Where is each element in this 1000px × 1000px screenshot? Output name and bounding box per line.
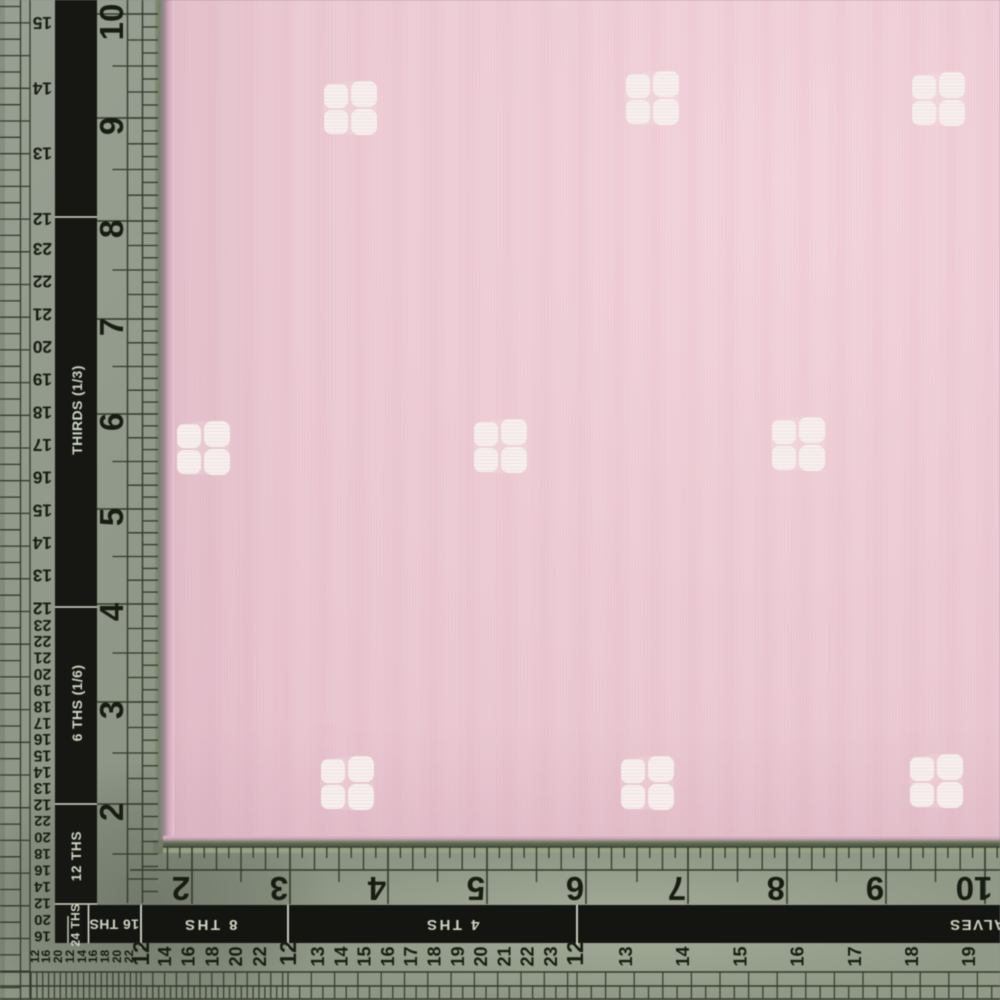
svg-text:9: 9 xyxy=(93,117,130,135)
svg-text:20: 20 xyxy=(34,911,51,928)
svg-text:18: 18 xyxy=(425,946,445,966)
svg-text:2: 2 xyxy=(172,870,190,907)
svg-text:12: 12 xyxy=(562,940,588,966)
svg-text:4: 4 xyxy=(367,870,386,907)
svg-text:6: 6 xyxy=(93,413,130,431)
svg-text:15: 15 xyxy=(730,946,750,966)
svg-text:16: 16 xyxy=(33,468,52,488)
svg-text:2: 2 xyxy=(93,803,130,821)
svg-text:17: 17 xyxy=(401,946,421,966)
svg-text:16: 16 xyxy=(34,730,52,747)
svg-text:17: 17 xyxy=(34,714,52,731)
svg-text:16: 16 xyxy=(378,946,398,966)
svg-text:23: 23 xyxy=(34,616,52,633)
svg-text:21: 21 xyxy=(34,649,52,666)
svg-text:8: 8 xyxy=(93,220,130,238)
svg-text:16 THS: 16 THS xyxy=(89,917,139,933)
svg-text:21: 21 xyxy=(494,946,514,966)
svg-text:13: 13 xyxy=(33,144,52,164)
svg-text:20: 20 xyxy=(34,829,51,846)
svg-text:8 THS: 8 THS xyxy=(182,916,237,933)
svg-text:15: 15 xyxy=(34,746,52,763)
svg-text:12: 12 xyxy=(275,940,301,966)
svg-text:12: 12 xyxy=(33,598,52,618)
svg-text:19: 19 xyxy=(959,946,979,966)
svg-text:17: 17 xyxy=(33,435,52,455)
svg-text:14: 14 xyxy=(155,946,175,966)
svg-text:18: 18 xyxy=(34,845,51,862)
svg-text:7: 7 xyxy=(668,870,686,907)
svg-text:13: 13 xyxy=(33,566,52,586)
svg-text:THIRDS (1/3): THIRDS (1/3) xyxy=(69,365,85,455)
svg-text:24 THS: 24 THS xyxy=(69,903,83,946)
svg-text:12: 12 xyxy=(34,795,52,812)
svg-text:18: 18 xyxy=(34,697,52,714)
svg-text:13: 13 xyxy=(616,946,636,966)
svg-text:20: 20 xyxy=(226,946,246,966)
svg-text:15: 15 xyxy=(33,13,52,33)
svg-text:14: 14 xyxy=(33,78,52,98)
svg-text:16: 16 xyxy=(34,928,51,945)
svg-text:12: 12 xyxy=(128,940,154,966)
svg-text:18: 18 xyxy=(33,402,52,422)
svg-text:23: 23 xyxy=(541,946,561,966)
svg-text:15: 15 xyxy=(33,500,52,520)
svg-text:19: 19 xyxy=(33,370,52,390)
svg-text:13: 13 xyxy=(34,779,52,796)
svg-text:20: 20 xyxy=(33,337,52,357)
svg-text:10: 10 xyxy=(956,870,993,907)
svg-text:4 THS: 4 THS xyxy=(424,916,479,933)
svg-text:HALVES: HALVES xyxy=(949,916,1000,933)
svg-text:14: 14 xyxy=(34,763,52,780)
svg-text:14: 14 xyxy=(331,946,351,966)
svg-text:7: 7 xyxy=(93,318,130,336)
svg-text:17: 17 xyxy=(845,946,865,966)
svg-text:16: 16 xyxy=(179,946,199,966)
svg-text:8: 8 xyxy=(767,870,785,907)
svg-text:22: 22 xyxy=(34,632,52,649)
svg-text:14: 14 xyxy=(673,946,693,966)
svg-text:12: 12 xyxy=(33,209,52,229)
svg-text:19: 19 xyxy=(34,681,52,698)
svg-text:22: 22 xyxy=(250,946,270,966)
svg-text:6 THS (1/6): 6 THS (1/6) xyxy=(69,665,85,742)
svg-text:23: 23 xyxy=(33,239,52,259)
svg-text:9: 9 xyxy=(866,870,884,907)
svg-text:4: 4 xyxy=(93,602,130,621)
svg-text:3: 3 xyxy=(93,701,130,719)
svg-text:12: 12 xyxy=(34,895,51,912)
svg-text:18: 18 xyxy=(902,946,922,966)
svg-text:14: 14 xyxy=(33,533,52,553)
svg-text:18: 18 xyxy=(202,946,222,966)
svg-text:15: 15 xyxy=(355,946,375,966)
svg-text:20: 20 xyxy=(34,665,52,682)
svg-text:3: 3 xyxy=(270,870,288,907)
svg-text:21: 21 xyxy=(33,304,52,324)
svg-text:16: 16 xyxy=(788,946,808,966)
svg-text:22: 22 xyxy=(34,812,51,829)
svg-text:12 THS: 12 THS xyxy=(69,831,84,882)
svg-text:5: 5 xyxy=(467,870,485,907)
svg-text:5: 5 xyxy=(93,508,130,526)
svg-text:22: 22 xyxy=(33,272,52,292)
svg-text:6: 6 xyxy=(566,870,584,907)
svg-text:20: 20 xyxy=(471,946,491,966)
svg-text:10: 10 xyxy=(93,4,130,41)
svg-text:19: 19 xyxy=(448,946,468,966)
svg-text:16: 16 xyxy=(34,862,51,879)
svg-text:22: 22 xyxy=(518,946,538,966)
svg-text:13: 13 xyxy=(308,946,328,966)
svg-text:14: 14 xyxy=(34,878,51,895)
